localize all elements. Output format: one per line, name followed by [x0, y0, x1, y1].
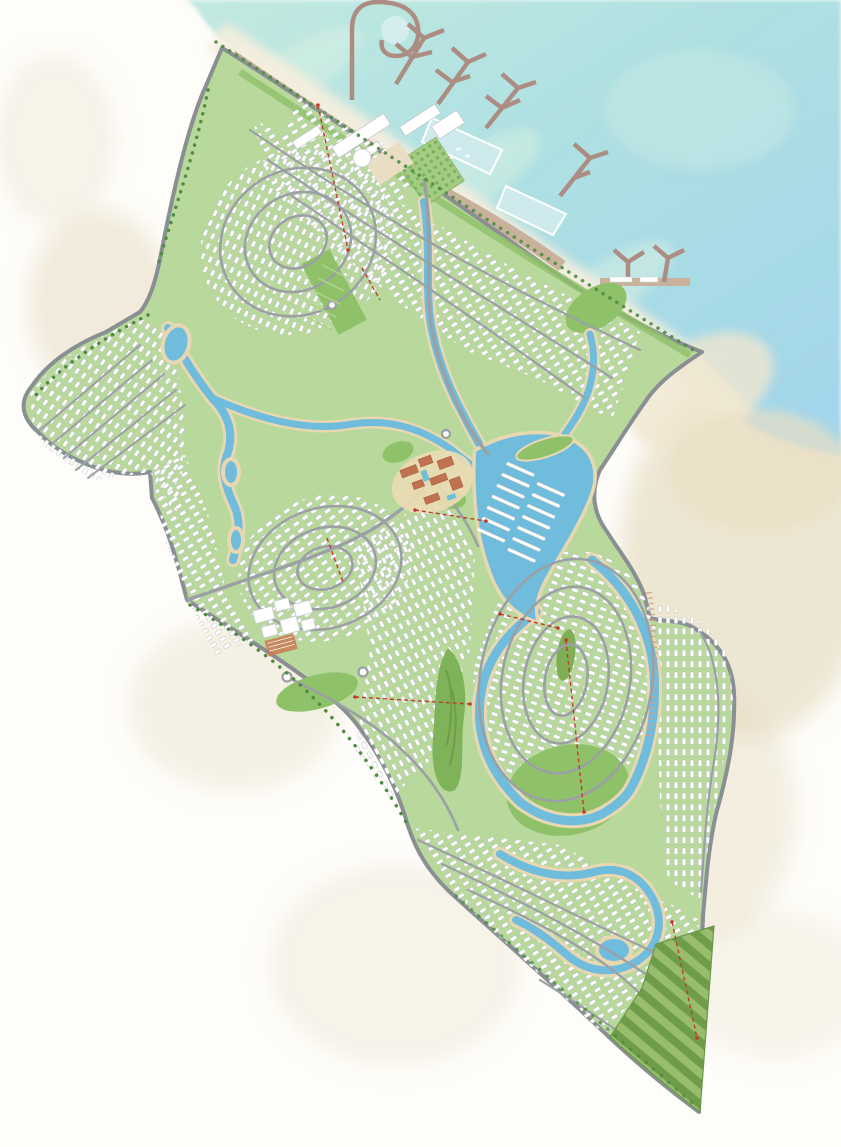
section-end — [353, 695, 357, 699]
section-end — [695, 1036, 699, 1040]
sand-wash — [0, 55, 115, 225]
masterplan-map — [0, 0, 841, 1147]
landmark-pavilion — [353, 149, 371, 167]
section-end — [346, 248, 350, 252]
quay-building — [640, 277, 658, 282]
lagoon-pool — [229, 528, 243, 552]
lagoon-pool — [223, 459, 239, 485]
masterplan-page — [0, 0, 841, 1147]
harbor-basin — [381, 16, 409, 44]
section-end — [484, 519, 488, 523]
section-end — [316, 103, 320, 107]
section-end — [670, 920, 674, 924]
section-end — [556, 626, 560, 630]
shallow-water — [605, 50, 795, 170]
section-end — [413, 508, 417, 512]
section-end — [582, 810, 586, 814]
section-end — [468, 702, 472, 706]
section-end — [498, 612, 502, 616]
lagoon-pond — [597, 937, 631, 963]
roundabout — [442, 430, 450, 438]
roundabout — [359, 668, 368, 677]
section-end — [564, 638, 568, 642]
quay-building — [610, 277, 632, 282]
